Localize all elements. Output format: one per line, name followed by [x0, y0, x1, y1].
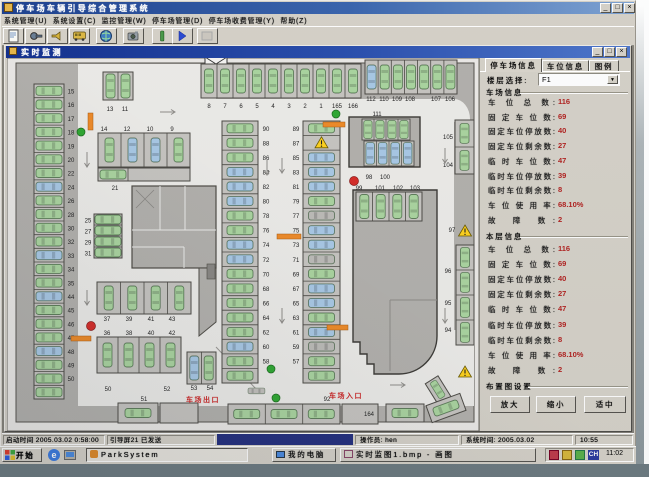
svg-text:29: 29: [85, 241, 92, 247]
svg-text:10: 10: [147, 127, 154, 133]
svg-text:68: 68: [263, 287, 270, 293]
svg-text:96: 96: [445, 269, 452, 275]
svg-text:59: 59: [293, 345, 300, 351]
svg-text:16: 16: [68, 103, 75, 109]
svg-text:33: 33: [68, 254, 75, 260]
svg-text:104: 104: [443, 163, 454, 169]
svg-text:49: 49: [68, 364, 75, 370]
svg-text:69: 69: [293, 272, 300, 278]
svg-text:28: 28: [68, 213, 75, 219]
svg-text:35: 35: [68, 281, 75, 287]
svg-text:87: 87: [293, 141, 300, 147]
svg-text:19: 19: [68, 144, 75, 150]
svg-text:100: 100: [380, 175, 391, 181]
svg-text:41: 41: [148, 317, 155, 323]
svg-text:107: 107: [431, 97, 442, 103]
svg-text:13: 13: [107, 107, 114, 113]
svg-text:50: 50: [68, 377, 75, 383]
svg-text:110: 110: [379, 97, 389, 103]
svg-text:81: 81: [293, 185, 300, 191]
svg-text:74: 74: [263, 243, 270, 249]
svg-text:54: 54: [207, 386, 214, 392]
svg-text:63: 63: [293, 316, 300, 322]
svg-text:164: 164: [364, 412, 375, 418]
svg-text:98: 98: [366, 175, 373, 181]
svg-text:111: 111: [372, 112, 382, 118]
svg-text:26: 26: [68, 199, 75, 205]
svg-text:70: 70: [263, 272, 270, 278]
svg-text:25: 25: [85, 219, 92, 225]
svg-text:90: 90: [263, 127, 270, 133]
svg-text:53: 53: [191, 386, 198, 392]
svg-text:42: 42: [169, 331, 176, 337]
svg-text:32: 32: [68, 240, 75, 246]
svg-text:27: 27: [85, 230, 92, 236]
svg-text:97: 97: [449, 228, 456, 234]
svg-text:109: 109: [392, 97, 403, 103]
svg-text:12: 12: [124, 127, 131, 133]
svg-text:99: 99: [356, 186, 363, 192]
svg-text:76: 76: [263, 229, 270, 235]
svg-text:62: 62: [263, 331, 270, 337]
svg-text:82: 82: [263, 185, 270, 191]
svg-text:101: 101: [375, 186, 386, 192]
svg-text:34: 34: [68, 268, 75, 274]
svg-text:车场入口: 车场入口: [329, 391, 363, 400]
svg-text:38: 38: [126, 331, 133, 337]
svg-text:43: 43: [169, 317, 176, 323]
svg-text:83: 83: [293, 170, 300, 176]
svg-text:64: 64: [263, 316, 270, 322]
svg-text:105: 105: [443, 135, 454, 141]
svg-text:48: 48: [68, 350, 75, 356]
svg-text:14: 14: [101, 127, 108, 133]
svg-text:108: 108: [405, 97, 416, 103]
svg-text:车场出口: 车场出口: [186, 395, 220, 404]
svg-text:80: 80: [263, 200, 270, 206]
svg-text:88: 88: [263, 141, 270, 147]
svg-text:51: 51: [141, 397, 148, 403]
svg-text:89: 89: [293, 127, 300, 133]
svg-text:30: 30: [68, 227, 75, 233]
svg-text:45: 45: [68, 309, 75, 315]
svg-text:71: 71: [293, 258, 300, 264]
svg-text:22: 22: [68, 172, 75, 178]
svg-text:31: 31: [85, 252, 92, 258]
svg-text:36: 36: [104, 331, 111, 337]
svg-text:39: 39: [126, 317, 133, 323]
svg-text:15: 15: [68, 90, 75, 96]
svg-text:40: 40: [148, 331, 155, 337]
svg-text:95: 95: [445, 301, 452, 307]
svg-text:72: 72: [263, 258, 270, 264]
svg-text:103: 103: [410, 186, 421, 192]
svg-text:20: 20: [68, 158, 75, 164]
svg-text:67: 67: [293, 287, 300, 293]
svg-text:66: 66: [263, 301, 270, 307]
svg-text:57: 57: [293, 360, 300, 366]
svg-text:44: 44: [68, 295, 75, 301]
svg-text:17: 17: [68, 117, 75, 123]
svg-text:60: 60: [263, 345, 270, 351]
svg-text:106: 106: [445, 97, 456, 103]
svg-text:86: 86: [263, 156, 270, 162]
svg-text:166: 166: [348, 104, 359, 110]
svg-text:102: 102: [393, 186, 404, 192]
svg-text:85: 85: [293, 156, 300, 162]
svg-text:94: 94: [445, 328, 452, 334]
svg-text:21: 21: [112, 186, 119, 192]
svg-text:50: 50: [105, 387, 112, 393]
svg-text:112: 112: [366, 97, 376, 103]
svg-text:18: 18: [68, 131, 75, 137]
svg-text:79: 79: [293, 200, 300, 206]
svg-text:78: 78: [263, 214, 270, 220]
svg-text:165: 165: [332, 104, 343, 110]
svg-text:11: 11: [122, 107, 129, 113]
svg-text:58: 58: [263, 360, 270, 366]
svg-text:46: 46: [68, 322, 75, 328]
svg-text:24: 24: [68, 185, 75, 191]
svg-text:65: 65: [293, 301, 300, 307]
svg-text:52: 52: [164, 387, 171, 393]
svg-text:77: 77: [293, 214, 300, 220]
svg-text:37: 37: [104, 317, 111, 323]
svg-text:61: 61: [293, 331, 300, 337]
svg-text:73: 73: [293, 243, 300, 249]
